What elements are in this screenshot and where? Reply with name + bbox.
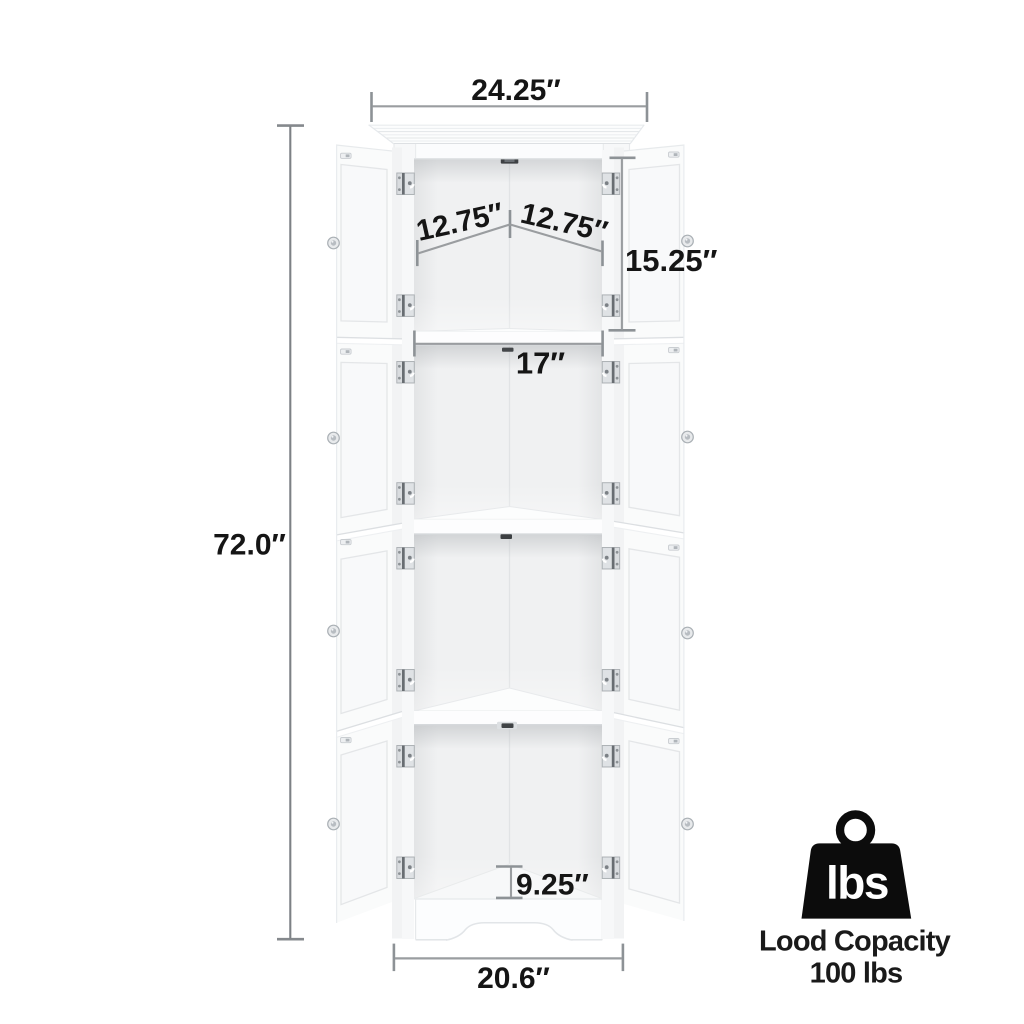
svg-text:24.25″: 24.25″ (471, 74, 560, 107)
svg-text:17″: 17″ (516, 346, 565, 381)
svg-text:72.0″: 72.0″ (213, 529, 286, 562)
svg-text:15.25″: 15.25″ (625, 243, 718, 278)
svg-text:100 lbs: 100 lbs (810, 958, 903, 990)
svg-text:9.25″: 9.25″ (516, 868, 589, 901)
svg-text:Lood Copacity: Lood Copacity (759, 926, 951, 958)
svg-text:20.6″: 20.6″ (477, 962, 550, 995)
svg-text:lbs: lbs (826, 857, 888, 909)
